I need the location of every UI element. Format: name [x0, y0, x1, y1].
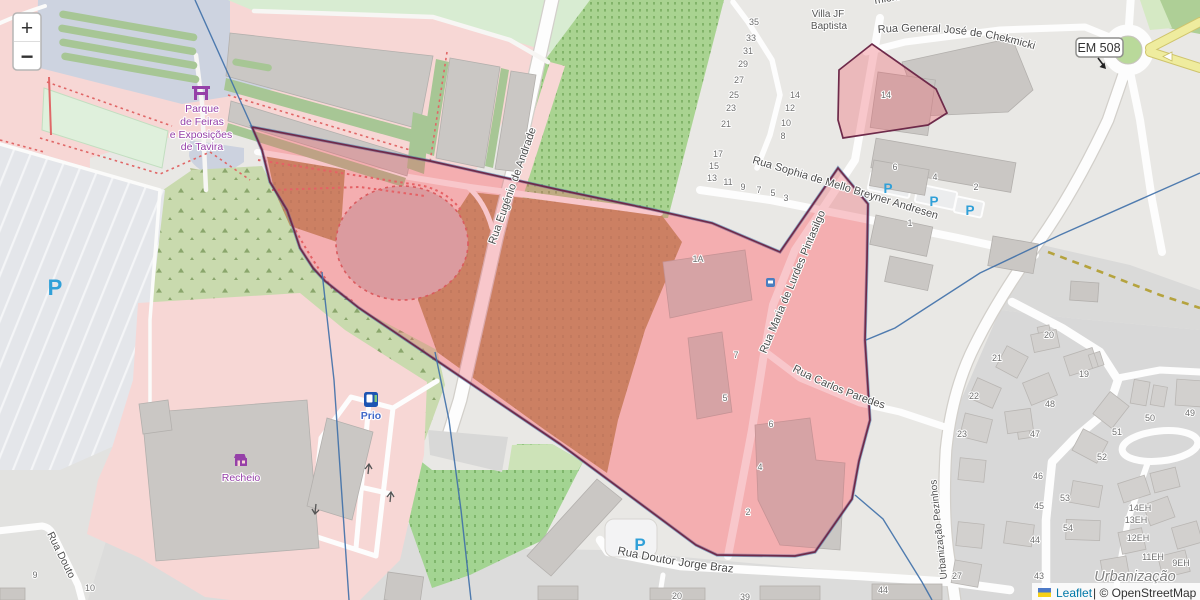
svg-text:1A: 1A [692, 254, 703, 264]
svg-text:21: 21 [992, 353, 1002, 363]
svg-text:21: 21 [721, 119, 731, 129]
svg-text:+: + [21, 17, 33, 40]
svg-text:P: P [965, 203, 974, 218]
svg-text:Urbanização: Urbanização [1094, 569, 1175, 585]
svg-text:14: 14 [881, 90, 891, 100]
svg-text:13EH: 13EH [1125, 515, 1148, 525]
svg-text:Villa JF: Villa JF [812, 9, 845, 20]
svg-text:51: 51 [1112, 427, 1122, 437]
svg-text:2: 2 [745, 507, 750, 517]
svg-text:3: 3 [783, 193, 788, 203]
svg-text:11: 11 [723, 177, 732, 187]
svg-text:1: 1 [907, 218, 912, 228]
svg-text:43: 43 [1034, 571, 1044, 581]
svg-text:6: 6 [892, 162, 897, 172]
svg-text:13: 13 [707, 173, 717, 183]
svg-text:12: 12 [785, 103, 795, 113]
svg-text:4: 4 [757, 462, 762, 472]
svg-text:20: 20 [1044, 330, 1054, 340]
svg-text:52: 52 [1097, 452, 1107, 462]
svg-text:35: 35 [749, 17, 759, 27]
svg-text:39: 39 [740, 592, 750, 600]
svg-text:22: 22 [969, 391, 979, 401]
svg-text:27: 27 [734, 75, 744, 85]
svg-text:6: 6 [768, 419, 773, 429]
svg-text:5: 5 [722, 393, 727, 403]
svg-text:45: 45 [1034, 501, 1044, 511]
svg-text:Baptista: Baptista [811, 21, 848, 32]
svg-text:20: 20 [672, 591, 682, 600]
svg-text:31: 31 [743, 46, 753, 56]
svg-text:9EH: 9EH [1172, 558, 1190, 568]
svg-text:7: 7 [756, 185, 761, 195]
svg-text:Parque: Parque [185, 103, 219, 115]
svg-text:29: 29 [738, 59, 748, 69]
svg-text:5: 5 [770, 188, 775, 198]
svg-text:14: 14 [790, 90, 800, 100]
svg-text:33: 33 [746, 33, 756, 43]
svg-text:47: 47 [1030, 429, 1040, 439]
svg-text:25: 25 [729, 90, 739, 100]
svg-text:23: 23 [726, 103, 736, 113]
svg-text:e Exposições: e Exposições [170, 129, 232, 141]
svg-text:54: 54 [1063, 523, 1073, 533]
svg-text:Prio: Prio [361, 410, 381, 422]
svg-text:19: 19 [1079, 369, 1089, 379]
svg-text:17: 17 [713, 149, 723, 159]
svg-text:| © OpenStreetMap: | © OpenStreetMap [1093, 586, 1197, 600]
svg-text:10: 10 [85, 583, 95, 593]
svg-text:−: − [21, 44, 34, 69]
svg-text:2: 2 [973, 182, 978, 192]
svg-text:EM 508: EM 508 [1077, 41, 1120, 55]
svg-text:53: 53 [1060, 493, 1070, 503]
svg-text:50: 50 [1145, 413, 1155, 423]
svg-text:44: 44 [1030, 535, 1040, 545]
svg-text:10: 10 [781, 118, 791, 128]
svg-text:46: 46 [1033, 471, 1043, 481]
svg-text:23: 23 [957, 429, 967, 439]
svg-text:27: 27 [952, 571, 962, 581]
svg-text:Leaflet: Leaflet [1056, 586, 1093, 600]
svg-text:7: 7 [733, 350, 738, 360]
svg-text:P: P [48, 275, 63, 300]
svg-text:de Tavira: de Tavira [181, 141, 224, 153]
svg-text:P: P [929, 194, 938, 209]
svg-text:12EH: 12EH [1127, 533, 1150, 543]
svg-text:15: 15 [709, 161, 719, 171]
svg-text:44: 44 [878, 585, 888, 595]
svg-text:9: 9 [740, 182, 745, 192]
svg-text:9: 9 [32, 570, 37, 580]
svg-text:4: 4 [932, 172, 937, 182]
svg-text:49: 49 [1185, 408, 1195, 418]
svg-text:de Feiras: de Feiras [180, 116, 224, 128]
svg-text:14EH: 14EH [1129, 503, 1152, 513]
svg-text:48: 48 [1045, 399, 1055, 409]
svg-text:8: 8 [780, 131, 785, 141]
svg-text:Recheio: Recheio [222, 472, 261, 484]
svg-text:11EH: 11EH [1142, 552, 1164, 562]
